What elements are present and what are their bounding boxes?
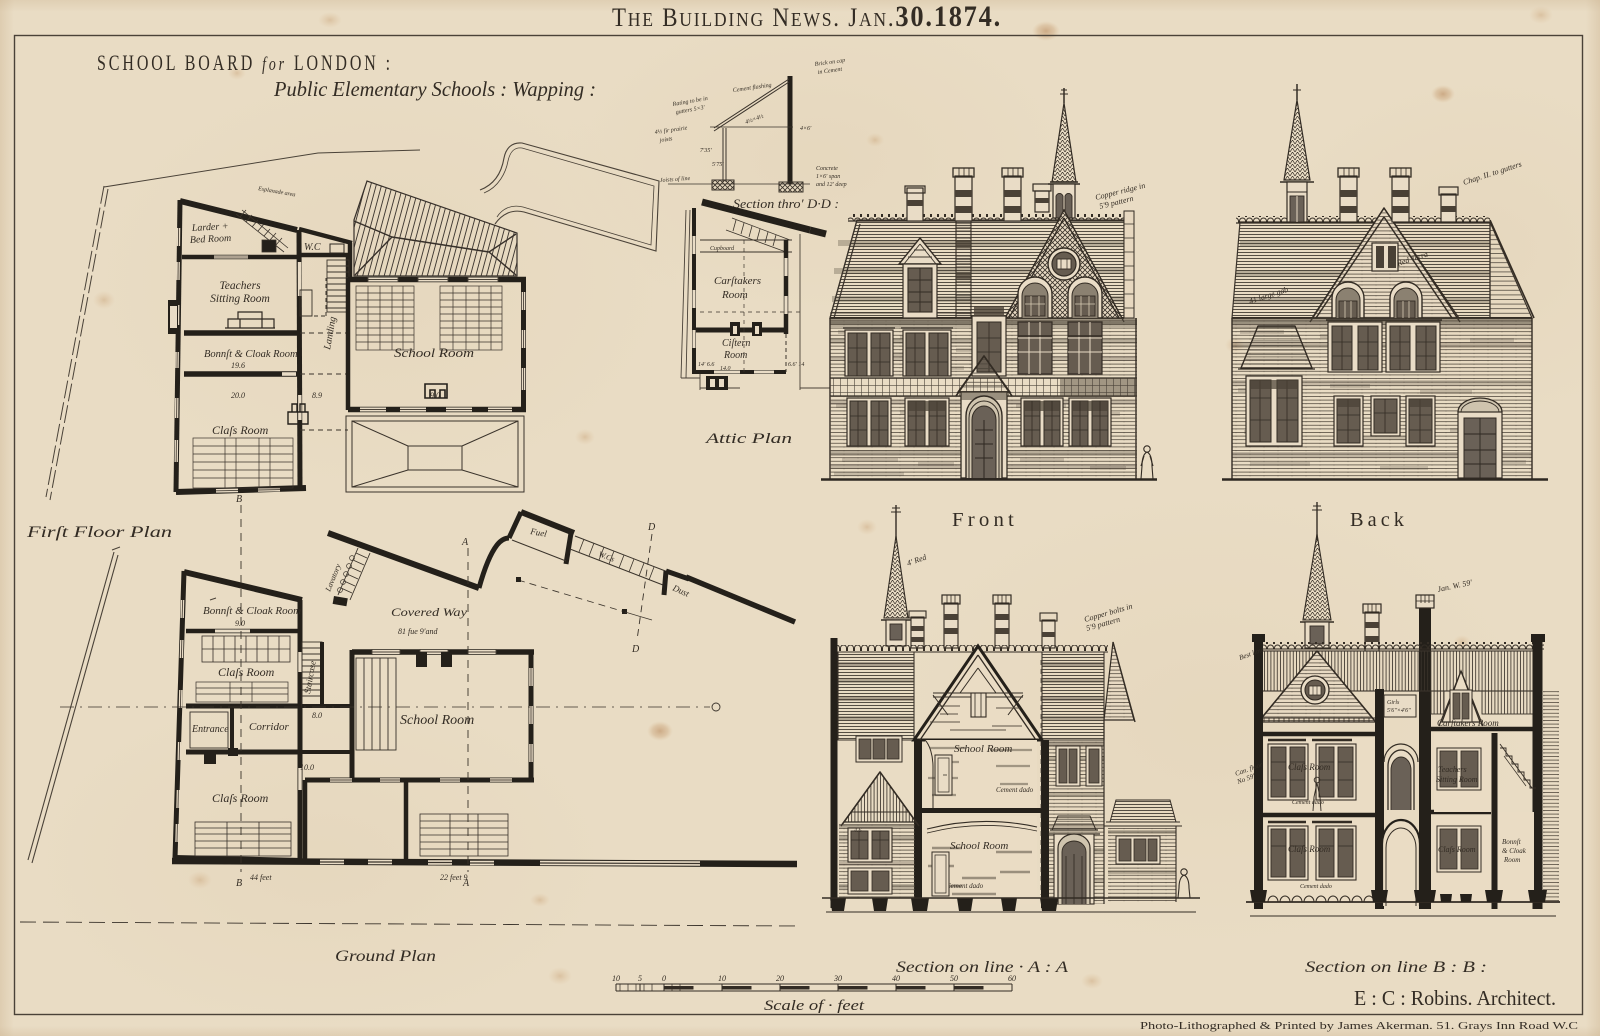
svg-text:Front: Front bbox=[952, 509, 1018, 531]
svg-text:22 feet 9: 22 feet 9 bbox=[440, 873, 468, 882]
svg-text:7′35′: 7′35′ bbox=[700, 148, 712, 154]
svg-text:Claſs Room: Claſs Room bbox=[1288, 844, 1331, 854]
svg-text:Room: Room bbox=[1503, 856, 1520, 864]
svg-text:5′75′: 5′75′ bbox=[712, 162, 724, 168]
svg-text:W.C: W.C bbox=[304, 242, 321, 253]
svg-text:50: 50 bbox=[950, 974, 958, 983]
svg-text:Claſs Room: Claſs Room bbox=[212, 791, 269, 805]
svg-text:A: A bbox=[461, 537, 469, 548]
svg-text:E : C : Robins. Architect.: E : C : Robins. Architect. bbox=[1354, 986, 1556, 1010]
svg-text:Claſs Room: Claſs Room bbox=[218, 665, 275, 679]
svg-text:D: D bbox=[631, 644, 640, 655]
svg-text:Cupboard: Cupboard bbox=[710, 246, 735, 252]
svg-text:School Room: School Room bbox=[954, 743, 1012, 755]
svg-text:Ground Plan: Ground Plan bbox=[335, 948, 436, 965]
svg-text:Carſtakers: Carſtakers bbox=[714, 275, 761, 287]
svg-text:Teachers: Teachers bbox=[219, 280, 261, 292]
svg-text:30: 30 bbox=[833, 974, 842, 983]
svg-text:B: B bbox=[236, 878, 242, 889]
svg-text:9.0: 9.0 bbox=[235, 619, 245, 628]
svg-text:81 fue 9′and: 81 fue 9′and bbox=[398, 627, 439, 636]
svg-text:20.0: 20.0 bbox=[231, 391, 245, 400]
svg-text:1×6′ span: 1×6′ span bbox=[816, 174, 840, 180]
svg-text:Attic Plan: Attic Plan bbox=[705, 431, 792, 447]
svg-text:Bonnſt & Cloak Room: Bonnſt & Cloak Room bbox=[204, 349, 298, 360]
svg-text:Claſs Room: Claſs Room bbox=[1288, 762, 1331, 772]
svg-text:5: 5 bbox=[638, 974, 642, 983]
svg-text:6.6′ 14: 6.6′ 14 bbox=[788, 361, 804, 368]
svg-text:10: 10 bbox=[718, 974, 726, 983]
svg-text:20: 20 bbox=[776, 974, 784, 983]
svg-text:Cement dado: Cement dado bbox=[1292, 800, 1324, 806]
svg-text:Entrance: Entrance bbox=[191, 724, 229, 735]
svg-text:Public Elementary Schools : Wa: Public Elementary Schools : Wapping : bbox=[273, 77, 596, 101]
svg-text:Sitting Room: Sitting Room bbox=[210, 293, 270, 305]
svg-text:Covered Way: Covered Way bbox=[391, 605, 468, 619]
svg-text:Scale of · feet: Scale of · feet bbox=[764, 998, 865, 1014]
svg-text:Firſt Floor Plan: Firſt Floor Plan bbox=[26, 524, 172, 541]
svg-text:& Cloak: & Cloak bbox=[1502, 847, 1527, 855]
svg-text:Teachers: Teachers bbox=[1438, 765, 1467, 774]
svg-text:19.6: 19.6 bbox=[231, 361, 245, 370]
svg-text:Back: Back bbox=[1350, 509, 1408, 531]
svg-text:40: 40 bbox=[892, 974, 900, 983]
svg-text:School Room: School Room bbox=[400, 713, 474, 728]
svg-text:Corridor: Corridor bbox=[249, 721, 289, 733]
svg-text:4.6: 4.6 bbox=[854, 827, 862, 834]
svg-text:5'6"×4'6": 5'6"×4'6" bbox=[1387, 707, 1411, 714]
svg-text:Sitting Room: Sitting Room bbox=[1436, 775, 1478, 784]
svg-text:Ciſtern: Ciſtern bbox=[722, 338, 750, 349]
svg-text:Section on line B : B :: Section on line B : B : bbox=[1305, 959, 1487, 976]
svg-text:10: 10 bbox=[612, 974, 620, 983]
svg-text:and 12′ deep: and 12′ deep bbox=[816, 182, 847, 188]
svg-text:B: B bbox=[236, 494, 242, 505]
svg-text:Claſs Room: Claſs Room bbox=[1438, 845, 1476, 854]
svg-text:Photo-Lithographed & Printed b: Photo-Lithographed & Printed by James Ak… bbox=[1140, 1020, 1578, 1032]
svg-text:Larder +: Larder + bbox=[191, 221, 229, 234]
svg-text:School Room: School Room bbox=[950, 840, 1008, 852]
svg-text:4×6′: 4×6′ bbox=[800, 125, 812, 132]
svg-text:44 feet: 44 feet bbox=[250, 873, 272, 882]
svg-text:14′ 6.6: 14′ 6.6 bbox=[698, 361, 714, 368]
svg-text:9.0: 9.0 bbox=[430, 391, 440, 400]
svg-text:10.0: 10.0 bbox=[300, 763, 314, 772]
svg-text:Bonnſt: Bonnſt bbox=[1502, 838, 1522, 846]
svg-text:D: D bbox=[647, 522, 656, 533]
svg-text:0: 0 bbox=[662, 974, 666, 983]
svg-text:Section thro′ D·D :: Section thro′ D·D : bbox=[733, 196, 839, 211]
svg-text:Claſs Room: Claſs Room bbox=[212, 423, 269, 437]
svg-text:Cement dado: Cement dado bbox=[1300, 884, 1332, 890]
svg-text:Carſtakers Room: Carſtakers Room bbox=[1437, 718, 1499, 728]
svg-text:Bonnſt & Cloak Room: Bonnſt & Cloak Room bbox=[203, 605, 301, 617]
svg-text:8.9: 8.9 bbox=[312, 391, 322, 400]
svg-text:Bed Room: Bed Room bbox=[190, 233, 232, 246]
svg-text:8.0: 8.0 bbox=[312, 711, 322, 720]
svg-text:School Room: School Room bbox=[394, 345, 474, 360]
svg-text:Cement dado: Cement dado bbox=[996, 786, 1034, 794]
svg-text:60: 60 bbox=[1008, 974, 1016, 983]
svg-text:Section on line · A : A: Section on line · A : A bbox=[896, 959, 1068, 976]
svg-text:Cement dado: Cement dado bbox=[946, 882, 984, 890]
svg-text:Girls: Girls bbox=[1387, 700, 1400, 706]
svg-text:SCHOOL BOARD for LONDON :: SCHOOL BOARD for LONDON : bbox=[97, 50, 393, 75]
svg-text:Concrete: Concrete bbox=[816, 166, 838, 172]
